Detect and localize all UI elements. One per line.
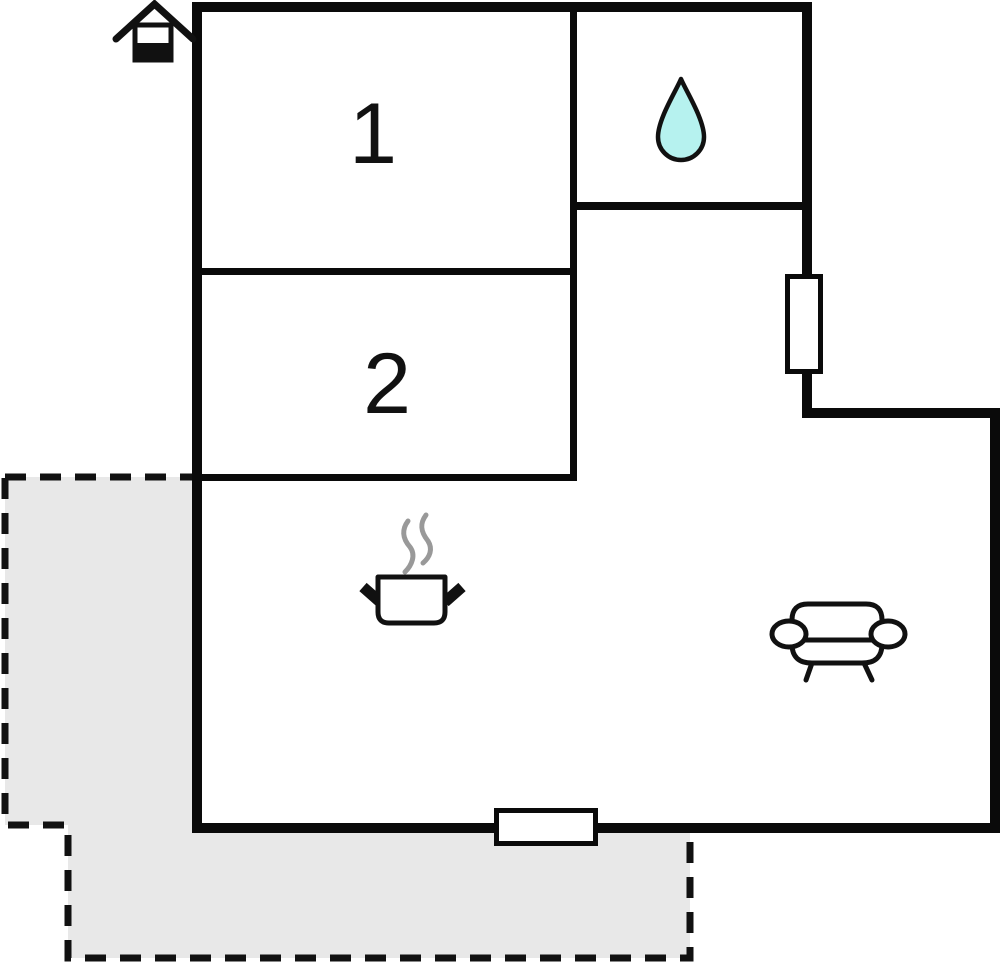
wall-left xyxy=(192,2,202,833)
wall-top xyxy=(192,2,812,12)
wall-step xyxy=(802,408,1000,418)
window-bottom xyxy=(494,808,598,846)
wall-right-lower xyxy=(990,408,1000,833)
wall-room-divider xyxy=(192,268,577,275)
entrance-house-icon xyxy=(112,0,197,68)
floor-plan: 1 2 xyxy=(0,0,1000,965)
terrace-outline xyxy=(5,477,690,958)
wall-room2-bottom xyxy=(192,474,577,481)
room-2-label: 2 xyxy=(327,334,447,434)
steam-icon xyxy=(404,515,431,572)
room-1-label: 1 xyxy=(313,84,433,184)
wall-bathroom-bottom xyxy=(570,202,812,210)
window-right xyxy=(785,274,823,374)
cooking-pot-icon xyxy=(350,510,465,625)
sofa-icon xyxy=(770,596,910,684)
water-drop-icon xyxy=(653,76,709,162)
wall-interior-vertical xyxy=(570,2,577,481)
